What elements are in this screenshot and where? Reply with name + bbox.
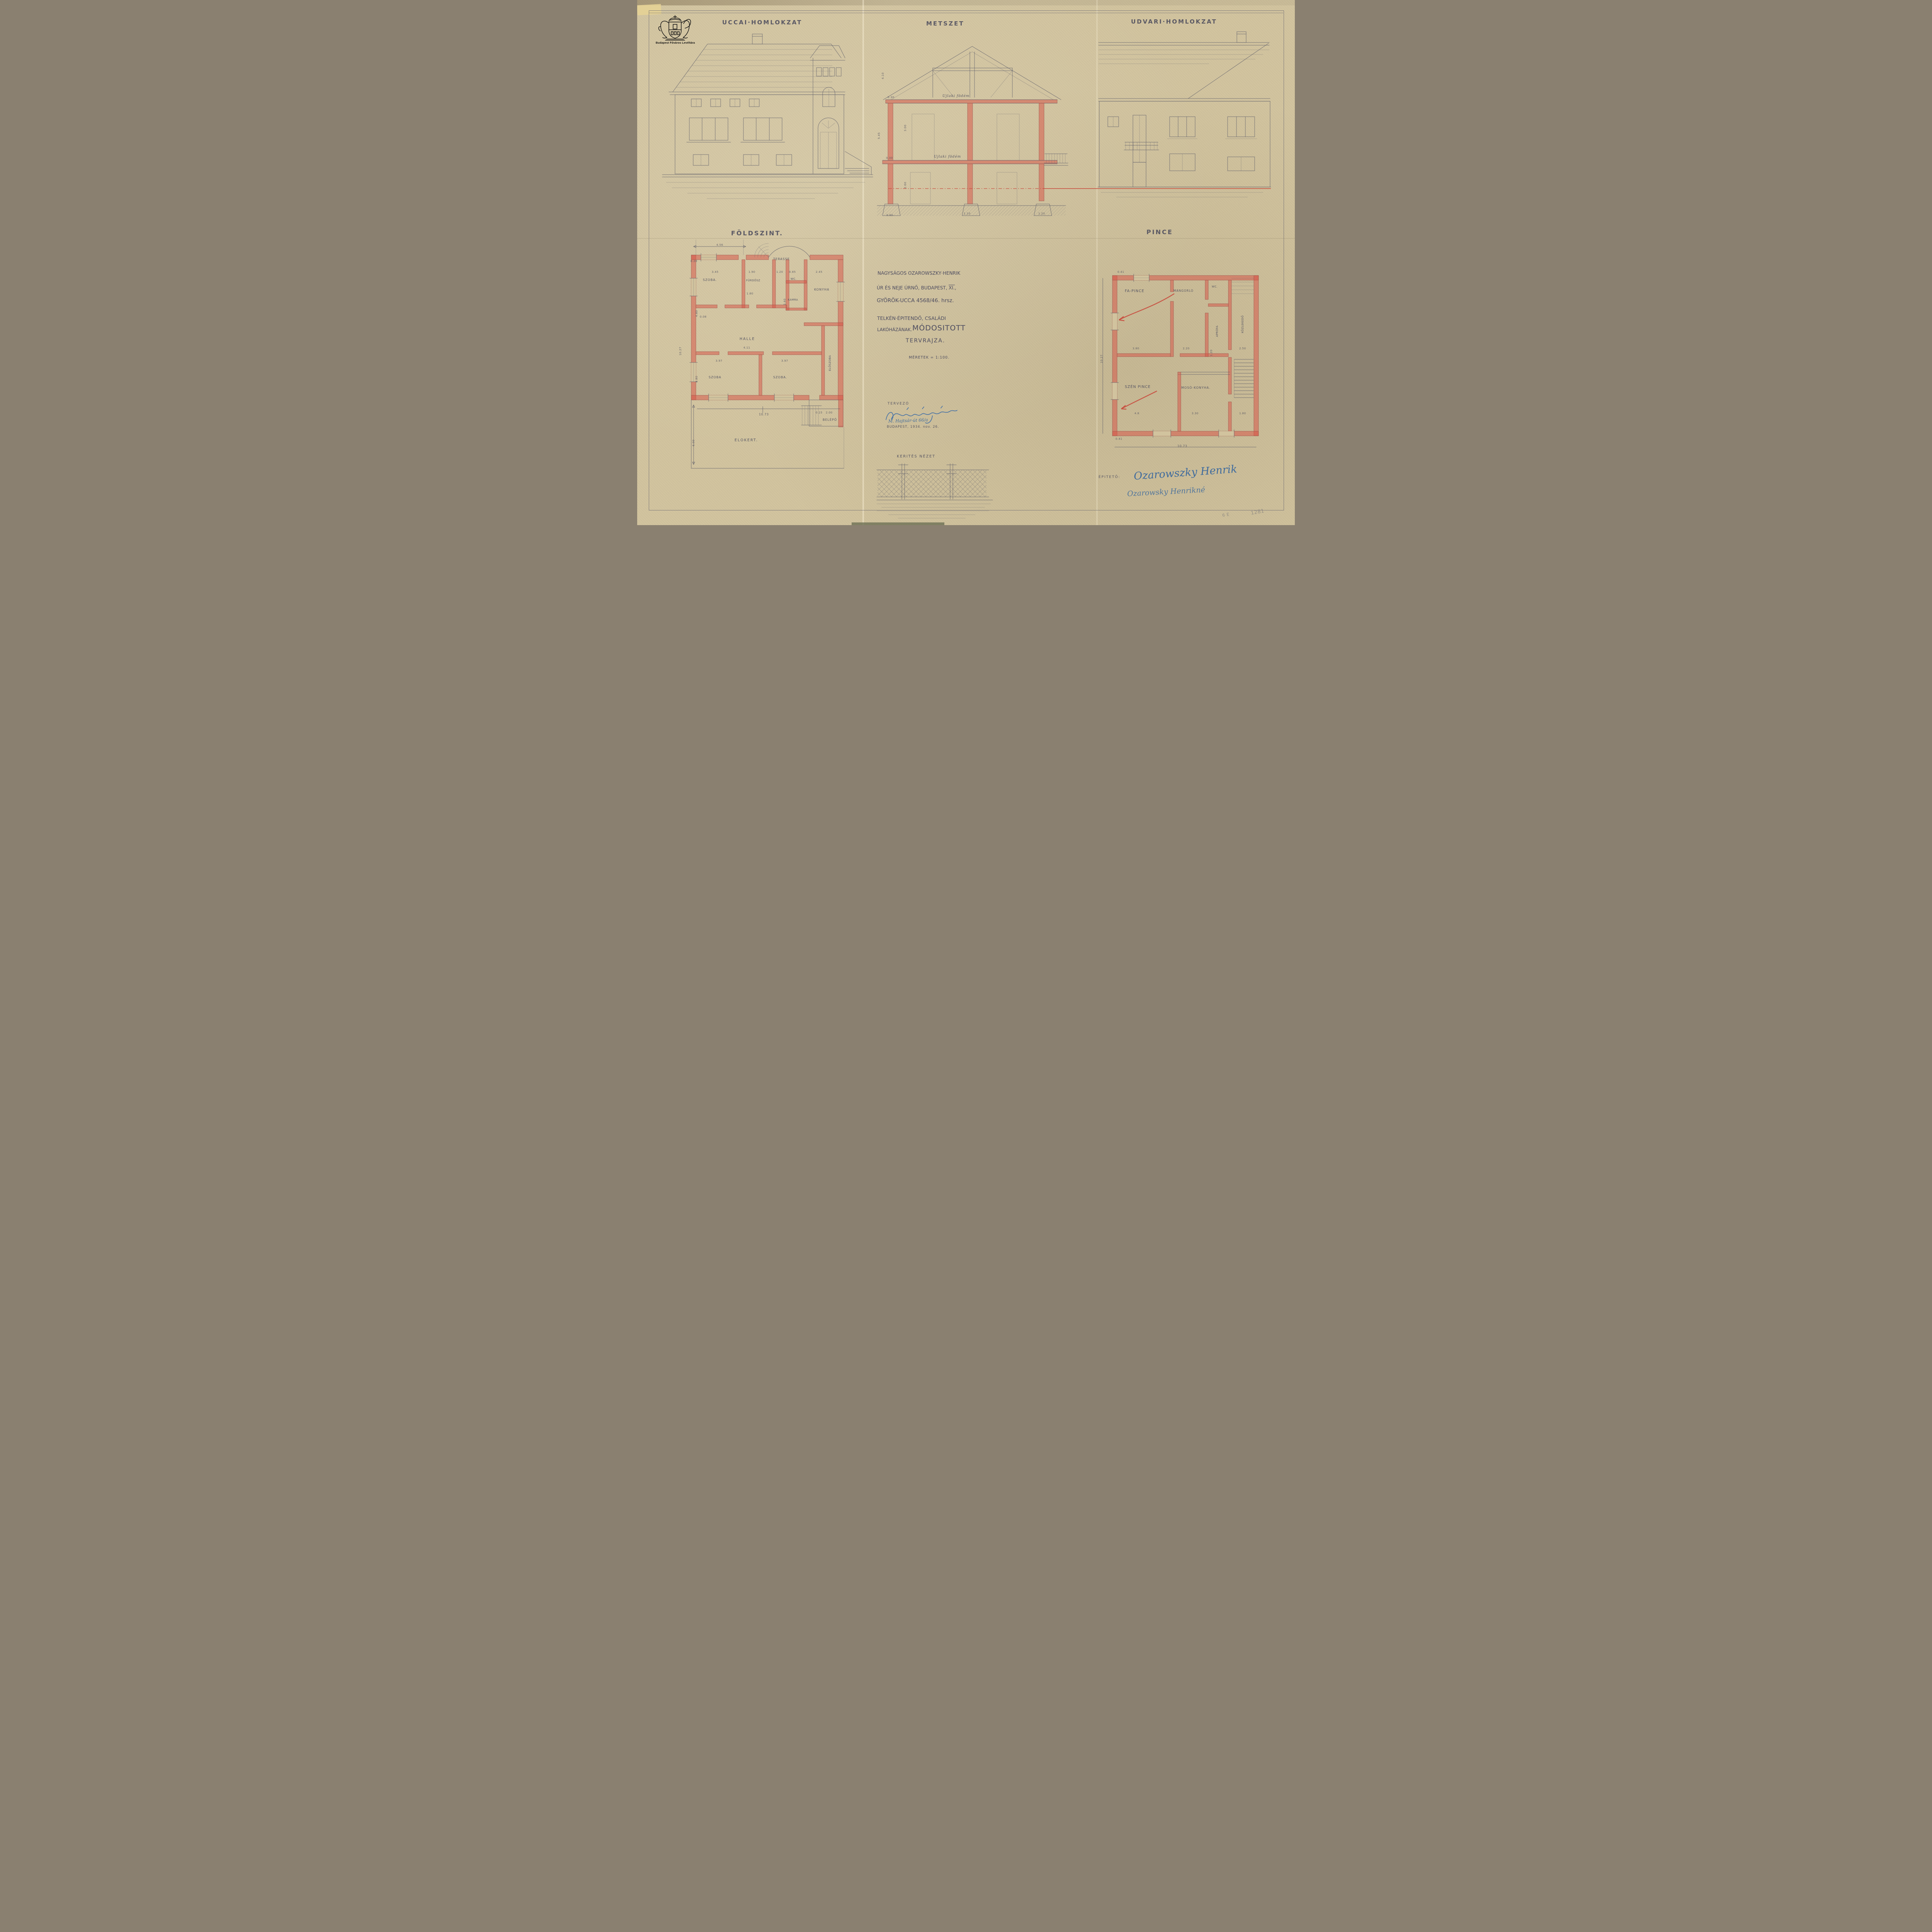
title-section: METSZET xyxy=(926,20,964,27)
project-text-line2: ÚR ÉS NEJE ÚRNŐ, BUDAPEST, XI., xyxy=(877,285,956,291)
gf-room-bath: FÜRDŐSZ xyxy=(746,279,760,282)
gf-dim-height: 4.80 xyxy=(695,376,698,383)
bs-room-coal: SZÉN PINCE xyxy=(1125,385,1151,389)
title-street-elevation: UCCAI·HOMLOKZAT xyxy=(722,19,802,26)
project-text-line5b: MÓDOSITOTT xyxy=(912,324,966,332)
project-text-district: XI. xyxy=(949,285,955,291)
designer-dateline: BUDAPEST, 1934. nov. 26. xyxy=(887,425,939,429)
bs-room-kindling: APRÓFA xyxy=(1216,325,1219,337)
fence-drawing xyxy=(877,452,1000,522)
gf-dim-kitchen: 2.45 xyxy=(816,270,823,274)
ground-floor-plan-drawing xyxy=(674,224,875,471)
gf-room-wc: WC. xyxy=(791,277,796,281)
gf-dim-height-tl: 4.80 xyxy=(695,310,698,317)
gf-room-br: SZOBA. xyxy=(773,376,787,379)
dim-slab2: 0.30 xyxy=(886,156,893,160)
project-text-line2-suffix: , xyxy=(955,285,956,291)
gf-room-kitchen: KONYHA xyxy=(814,288,829,291)
gf-room-hall: HALLE xyxy=(740,337,755,341)
bs-dim-kindling: 1.20 xyxy=(1210,349,1213,356)
gf-room-tl: SZOBA. xyxy=(703,278,717,282)
dim-footing-mid: 1.10 xyxy=(964,212,971,215)
gf-dim-room-br: 3.97 xyxy=(781,359,788,362)
dim-total-height: 5.45 xyxy=(878,132,881,139)
bs-dim-total-w: 10.73 xyxy=(1177,444,1187,448)
basement-plan-drawing xyxy=(1095,255,1273,456)
project-text-line6: TERVRAJZA. xyxy=(906,338,945,344)
bs-room-laundry: MOSÓ-KONYHA. xyxy=(1181,386,1211,389)
gf-dim-wall: 0.28 xyxy=(690,260,697,263)
gf-dim-top: 4.56 xyxy=(716,243,723,247)
project-text-line3: GYÖRÖK-UCCA 4568/46. hrsz. xyxy=(877,298,954,304)
gf-room-terrace: TERASSE xyxy=(773,257,790,261)
dim-slab1: 0.30 xyxy=(888,96,895,99)
dim-footing-left: 0.60 xyxy=(886,214,893,217)
project-text-line1: NAGYSÁGOS OZAROWSZKY·HENRIK xyxy=(878,270,960,276)
gf-dim-pantry-depth: 2.40 xyxy=(783,298,786,305)
courtyard-elevation-drawing xyxy=(1093,31,1275,209)
gf-dim-small: 0.08 xyxy=(700,315,707,318)
project-scale-note: MÉRETEK = 1:100. xyxy=(909,355,949,360)
bs-dim-wall-bottom: 0.41 xyxy=(1116,437,1122,440)
dim-storey-height: 3.00 xyxy=(904,124,907,131)
slab-note-lower: Ujlaki födém xyxy=(934,155,961,159)
red-ground-level-line xyxy=(888,185,1274,193)
bs-dim-corridor: 2.50 xyxy=(1239,347,1246,350)
bs-room-mangle: MÁNGORLÓ xyxy=(1173,289,1194,293)
title-courtyard-elevation: UDVARI·HOMLOKZAT xyxy=(1131,18,1217,25)
bs-dim-laundry: 3.30 xyxy=(1192,412,1199,415)
dim-roof-height: 4.10 xyxy=(881,72,884,79)
gf-dim-room-bl: 3.97 xyxy=(716,359,723,362)
designer-label: TERVEZŐ xyxy=(888,402,909,406)
gf-dim-garden-d: 6.00 xyxy=(692,439,695,446)
bs-dim-left-h: 10.27 xyxy=(1100,354,1103,363)
gf-dim-bath: 1.90 xyxy=(748,270,755,274)
bs-dim-wood: 3.80 xyxy=(1133,347,1139,350)
bs-dim-coal: 4.8 xyxy=(1134,412,1139,415)
dim-footing-right: 1.20 xyxy=(1038,212,1045,215)
bs-room-wc: WC. xyxy=(1212,285,1218,288)
gf-dim-left-h: 10.27 xyxy=(679,347,682,355)
gf-dim-bath-depth: 1.80 xyxy=(747,292,753,295)
street-elevation-drawing xyxy=(660,31,877,209)
project-text-line4: TELKÉN·ÉPITENDŐ, CSALÁDI xyxy=(877,315,946,321)
bs-room-wood: FA-PINCE xyxy=(1125,289,1145,293)
gf-area-garden: ELŐKERT. xyxy=(735,438,758,442)
blueprint-sheet: Budapest Főváros Levéltára UCCAI·HOMLOKZ… xyxy=(637,0,1295,525)
bs-dim-wall-top: 0.41 xyxy=(1117,270,1124,274)
scan-edge-shading xyxy=(637,0,1295,5)
corner-pencil-note-a: 6 E xyxy=(1222,512,1230,518)
gf-dim-wc: 0.85 xyxy=(789,270,796,274)
gf-room-vestibule: ELŐSZOBA xyxy=(828,355,832,371)
gf-dim-total-w: 10.73 xyxy=(759,413,769,416)
gf-dim-corr: 1.20 xyxy=(776,270,783,274)
section-drawing xyxy=(875,31,1068,232)
gf-dim-entry-s: 0.15 xyxy=(816,411,823,414)
gf-dim-entry-w: 2.00 xyxy=(826,411,833,414)
bs-room-corridor: KÖZLEKEDŐ xyxy=(1241,315,1244,333)
gf-dim-hall: 4.11 xyxy=(743,346,750,349)
bs-dim-mangle: 2.20 xyxy=(1183,347,1190,350)
gf-room-bl: SZOBA xyxy=(709,376,721,379)
client-label: ÉPITETŐ: xyxy=(1099,475,1121,479)
gf-dim-room-tl: 3.45 xyxy=(712,270,719,274)
gf-room-entry: BELÉPŐ xyxy=(823,418,837,422)
project-text-line2-prefix: ÚR ÉS NEJE ÚRNŐ, BUDAPEST, xyxy=(877,285,947,291)
scan-bottom-edge xyxy=(852,522,944,525)
title-basement: PINCE xyxy=(1146,228,1173,236)
slab-note-upper: Ujlaki födém xyxy=(942,94,969,98)
sheet-border-inner-top xyxy=(649,13,1283,13)
gf-room-pantry: KAMRA xyxy=(788,298,798,301)
bs-dim-stair: 1.80 xyxy=(1239,412,1246,415)
project-text-line5a: LAKÓHÁZÁNAK. xyxy=(877,327,912,332)
